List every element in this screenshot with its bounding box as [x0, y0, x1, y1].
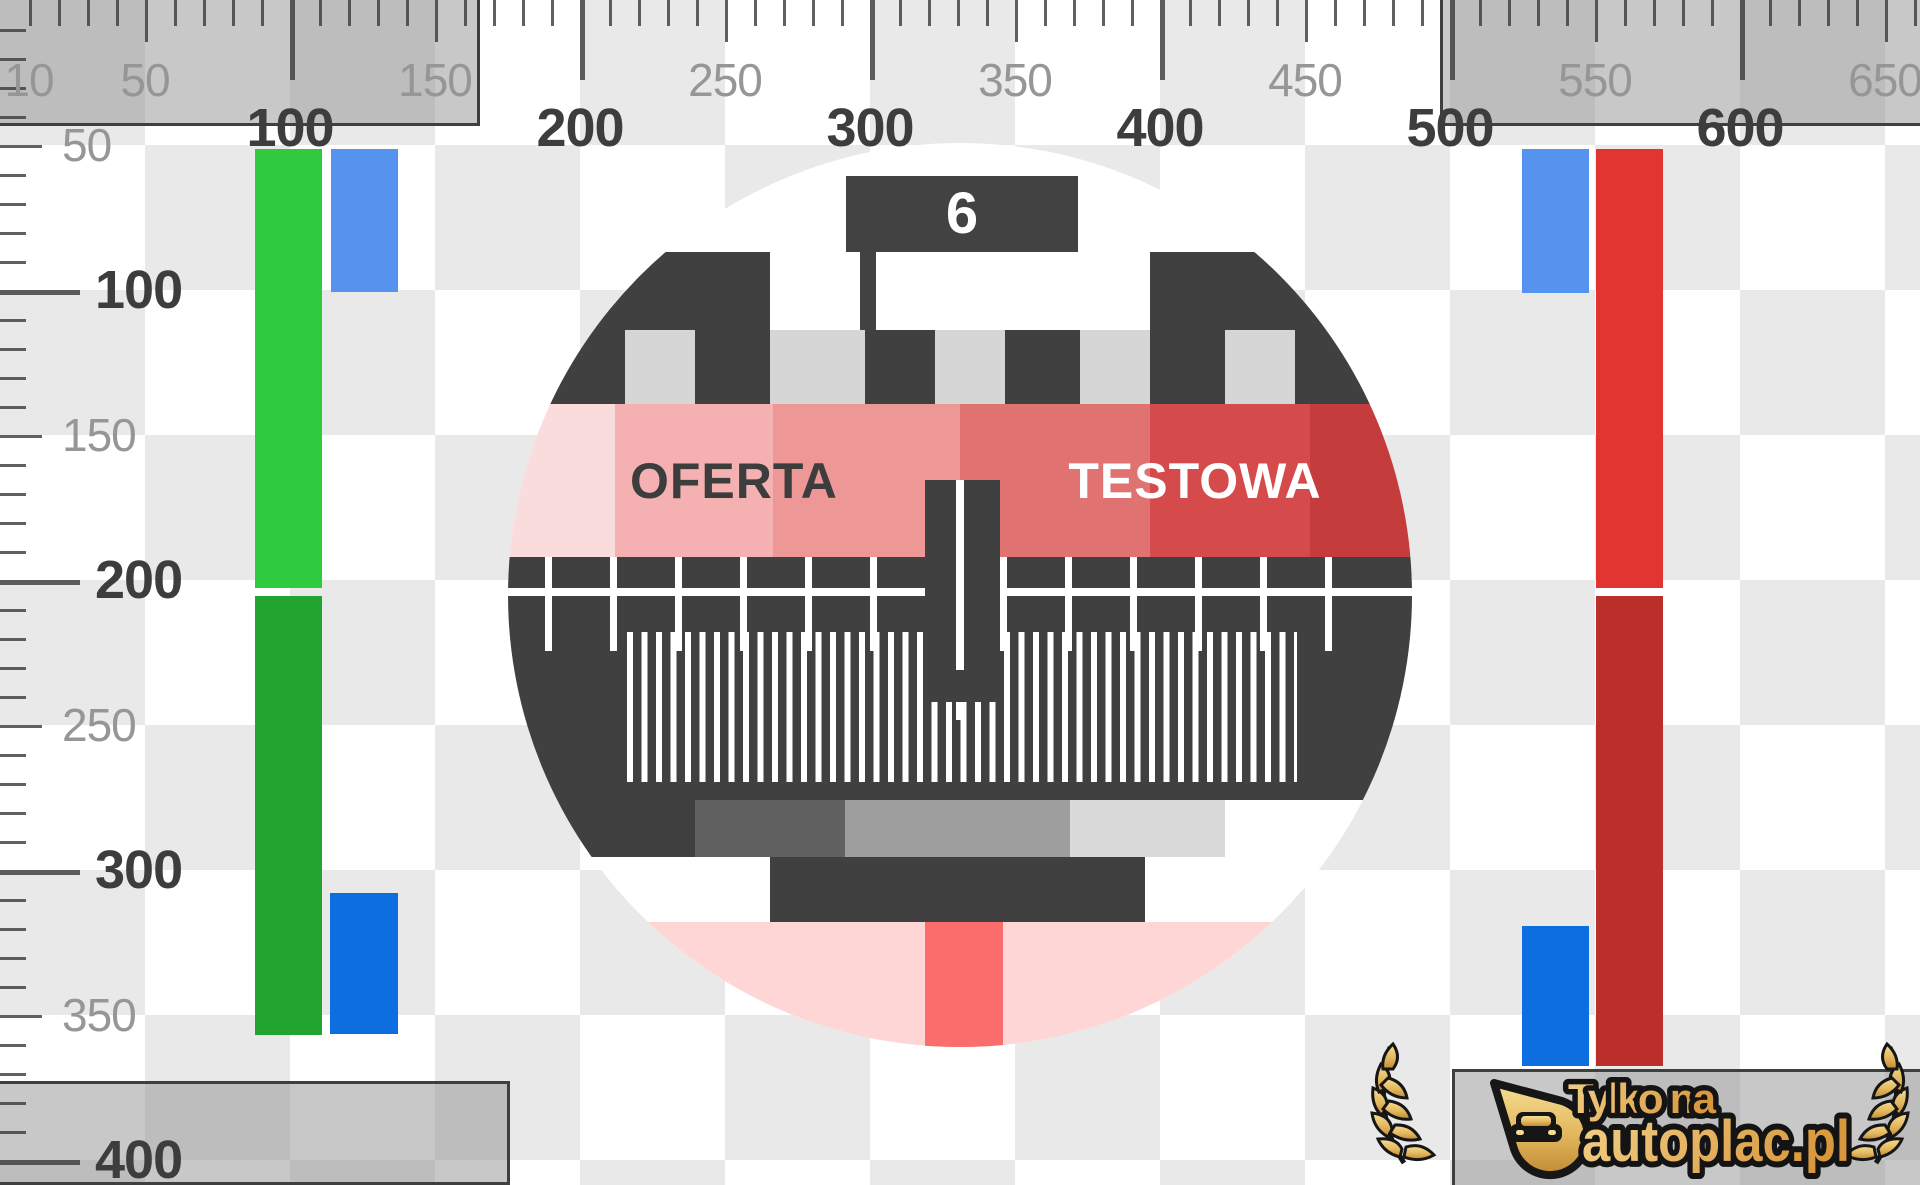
top-ruler-label: 50	[120, 57, 169, 103]
left-ruler-tick	[0, 580, 80, 585]
top-ruler-tick	[551, 0, 554, 26]
left-ruler-label: 100	[95, 263, 182, 317]
top-ruler-tick	[1624, 0, 1627, 26]
left-ruler-label: 150	[62, 412, 136, 458]
top-ruler-tick	[261, 0, 264, 26]
top-ruler-label: 10	[4, 57, 53, 103]
top-ruler-tick	[319, 0, 322, 26]
castellation-block-1	[865, 330, 935, 404]
top-ruler-tick	[1740, 0, 1745, 80]
top-ruler-tick	[1827, 0, 1830, 26]
left-ruler-tick	[0, 435, 42, 438]
top-ruler-label: 450	[1268, 57, 1342, 103]
car-icon	[1510, 1112, 1562, 1142]
top-ruler-tick	[1595, 0, 1598, 42]
center-marker-line	[956, 480, 964, 670]
top-ruler-tick	[1102, 0, 1105, 26]
left-ruler-tick	[0, 232, 26, 235]
castle-left-notch	[625, 330, 695, 404]
top-ruler-tick	[1015, 0, 1018, 42]
left-ruler-label: 250	[62, 702, 136, 748]
left-ruler-tick	[0, 1044, 26, 1047]
top-ruler-tick	[348, 0, 351, 26]
top-ruler-tick	[1392, 0, 1395, 26]
top-ruler-tick	[87, 0, 90, 26]
left-ruler-tick	[0, 696, 26, 699]
top-ruler-tick	[754, 0, 757, 26]
left-ruler-tick	[0, 812, 26, 815]
band-text-left: OFERTA	[630, 454, 830, 508]
green-bar-bottom	[255, 596, 322, 1035]
top-ruler-tick	[609, 0, 612, 26]
top-ruler-tick	[1479, 0, 1482, 26]
top-ruler-tick	[1508, 0, 1511, 26]
blue-bar-top-left	[331, 149, 398, 292]
channel-box-stem	[860, 252, 876, 330]
top-ruler-tick	[1421, 0, 1424, 26]
top-ruler-tick	[1044, 0, 1047, 26]
top-ruler-tick	[1450, 0, 1455, 80]
top-ruler-tick	[1856, 0, 1859, 26]
top-ruler-tick	[1247, 0, 1250, 26]
top-ruler-tick	[1363, 0, 1366, 26]
left-ruler-tick	[0, 899, 26, 902]
top-ruler-tick	[928, 0, 931, 26]
left-ruler-tick	[0, 754, 26, 757]
top-ruler-tick	[1566, 0, 1569, 26]
top-ruler-tick	[464, 0, 467, 26]
top-ruler-label: 250	[688, 57, 762, 103]
top-ruler-tick	[1885, 0, 1888, 42]
top-ruler-tick	[435, 0, 438, 42]
dark-band-tick	[1325, 557, 1332, 651]
left-ruler-tick	[0, 1102, 26, 1105]
channel-number: 6	[946, 181, 978, 246]
left-ruler-tick	[0, 116, 26, 119]
top-ruler-label: 650	[1848, 57, 1920, 103]
top-ruler-tick	[1276, 0, 1279, 26]
top-ruler-tick	[522, 0, 525, 26]
top-ruler-tick	[667, 0, 670, 26]
top-ruler-tick	[377, 0, 380, 26]
left-ruler-tick	[0, 174, 26, 177]
left-ruler-tick	[0, 1160, 80, 1165]
top-ruler-tick	[1305, 0, 1308, 42]
top-ruler-tick	[1914, 0, 1917, 26]
top-ruler-label: 150	[398, 57, 472, 103]
left-ruler-tick	[0, 319, 26, 322]
left-ruler-tick	[0, 348, 26, 351]
castellation-block-2	[1005, 330, 1080, 404]
left-ruler-tick	[0, 928, 26, 931]
left-ruler-tick	[0, 203, 26, 206]
left-ruler-label: 50	[62, 122, 111, 168]
top-ruler-label: 550	[1558, 57, 1632, 103]
top-ruler-tick	[696, 0, 699, 26]
top-ruler-tick	[580, 0, 585, 80]
laurel-right-icon	[1846, 1044, 1908, 1163]
top-ruler-tick	[1711, 0, 1714, 26]
top-ruler-label: 600	[1696, 101, 1783, 155]
left-ruler-label: 200	[95, 553, 182, 607]
top-ruler-tick	[1218, 0, 1221, 26]
top-ruler-tick	[58, 0, 61, 26]
top-ruler-tick	[1160, 0, 1165, 80]
top-ruler-tick	[290, 0, 295, 80]
bottom-salmon-bar	[925, 922, 1003, 1047]
top-ruler-tick	[145, 0, 148, 42]
top-ruler-tick	[783, 0, 786, 26]
left-ruler-tick	[0, 1131, 26, 1134]
red-band-step	[508, 404, 615, 557]
logo-brand: autoplac.pl	[1582, 1109, 1850, 1174]
top-ruler-label: 200	[536, 101, 623, 155]
top-ruler-tick	[1682, 0, 1685, 26]
top-ruler-tick	[29, 0, 32, 26]
left-ruler-label: 400	[95, 1133, 182, 1185]
dark-band-tick	[610, 557, 617, 651]
top-ruler-tick	[899, 0, 902, 26]
top-ruler-tick	[1769, 0, 1772, 26]
left-ruler-tick	[0, 1015, 42, 1018]
top-ruler-tick	[232, 0, 235, 26]
left-ruler-tick	[0, 1073, 26, 1076]
left-ruler-tick	[0, 986, 26, 989]
top-ruler-tick	[1798, 0, 1801, 26]
left-ruler-tick	[0, 870, 80, 875]
castle-right-notch	[1225, 330, 1295, 404]
top-ruler-label: 300	[826, 101, 913, 155]
top-ruler-label: 400	[1116, 101, 1203, 155]
center-marker-line-lower	[956, 702, 964, 720]
tv-test-card-image: 6 OFERTA TESTOWA 1050	[0, 0, 1920, 1185]
castellation-row	[770, 330, 1150, 404]
left-ruler-tick	[0, 609, 26, 612]
top-ruler-tick	[203, 0, 206, 26]
left-ruler-tick	[0, 957, 26, 960]
left-ruler: 50150250350100200300400	[0, 0, 200, 1185]
top-ruler-tick	[406, 0, 409, 26]
left-ruler-tick	[0, 667, 26, 670]
left-ruler-label: 350	[62, 992, 136, 1038]
left-ruler-tick	[0, 406, 26, 409]
blue-bar-bottom-left	[330, 893, 398, 1034]
top-ruler-label: 350	[978, 57, 1052, 103]
bottom-dark-box	[770, 857, 1145, 922]
channel-number-box: 6	[846, 176, 1078, 252]
top-ruler-label: 500	[1406, 101, 1493, 155]
test-pattern-circle: 6 OFERTA TESTOWA	[508, 143, 1412, 1047]
ruler-box-bottom-left	[0, 1081, 510, 1185]
top-ruler-tick	[1131, 0, 1134, 26]
top-ruler-tick	[870, 0, 875, 80]
red-band-step	[1310, 404, 1412, 557]
left-ruler-tick	[0, 464, 26, 467]
left-ruler-tick	[0, 638, 26, 641]
left-ruler-tick	[0, 145, 42, 148]
top-ruler-tick	[638, 0, 641, 26]
left-ruler-tick	[0, 522, 26, 525]
autoplac-logo: Tylko na autoplac.pl	[1360, 1035, 1920, 1185]
left-ruler-tick	[0, 551, 26, 554]
top-ruler-tick	[725, 0, 728, 42]
top-ruler-tick	[957, 0, 960, 26]
top-ruler-tick	[1653, 0, 1656, 26]
left-ruler-tick	[0, 290, 80, 295]
top-ruler-tick	[1537, 0, 1540, 26]
top-ruler-tick	[1189, 0, 1192, 26]
left-ruler-tick	[0, 783, 26, 786]
top-ruler-tick	[174, 0, 177, 26]
blue-bar-top-right	[1522, 149, 1589, 293]
top-ruler-label: 100	[246, 101, 333, 155]
left-ruler-tick	[0, 841, 26, 844]
green-bar-top	[255, 149, 322, 588]
top-ruler-tick	[1073, 0, 1076, 26]
dark-band-tick	[545, 557, 552, 651]
top-ruler-tick	[986, 0, 989, 26]
red-bar-top	[1596, 149, 1663, 588]
left-ruler-label: 300	[95, 843, 182, 897]
top-ruler-tick	[812, 0, 815, 26]
band-text-right: TESTOWA	[1065, 454, 1325, 508]
top-ruler-tick	[116, 0, 119, 26]
left-ruler-tick	[0, 725, 42, 728]
left-ruler-tick	[0, 493, 26, 496]
laurel-left-icon	[1372, 1044, 1434, 1163]
left-ruler-tick	[0, 29, 26, 32]
top-ruler-tick	[841, 0, 844, 26]
red-bar-bottom	[1596, 596, 1663, 1066]
top-ruler-tick	[493, 0, 496, 26]
top-ruler-tick	[1334, 0, 1337, 26]
left-ruler-tick	[0, 377, 26, 380]
left-ruler-tick	[0, 261, 26, 264]
